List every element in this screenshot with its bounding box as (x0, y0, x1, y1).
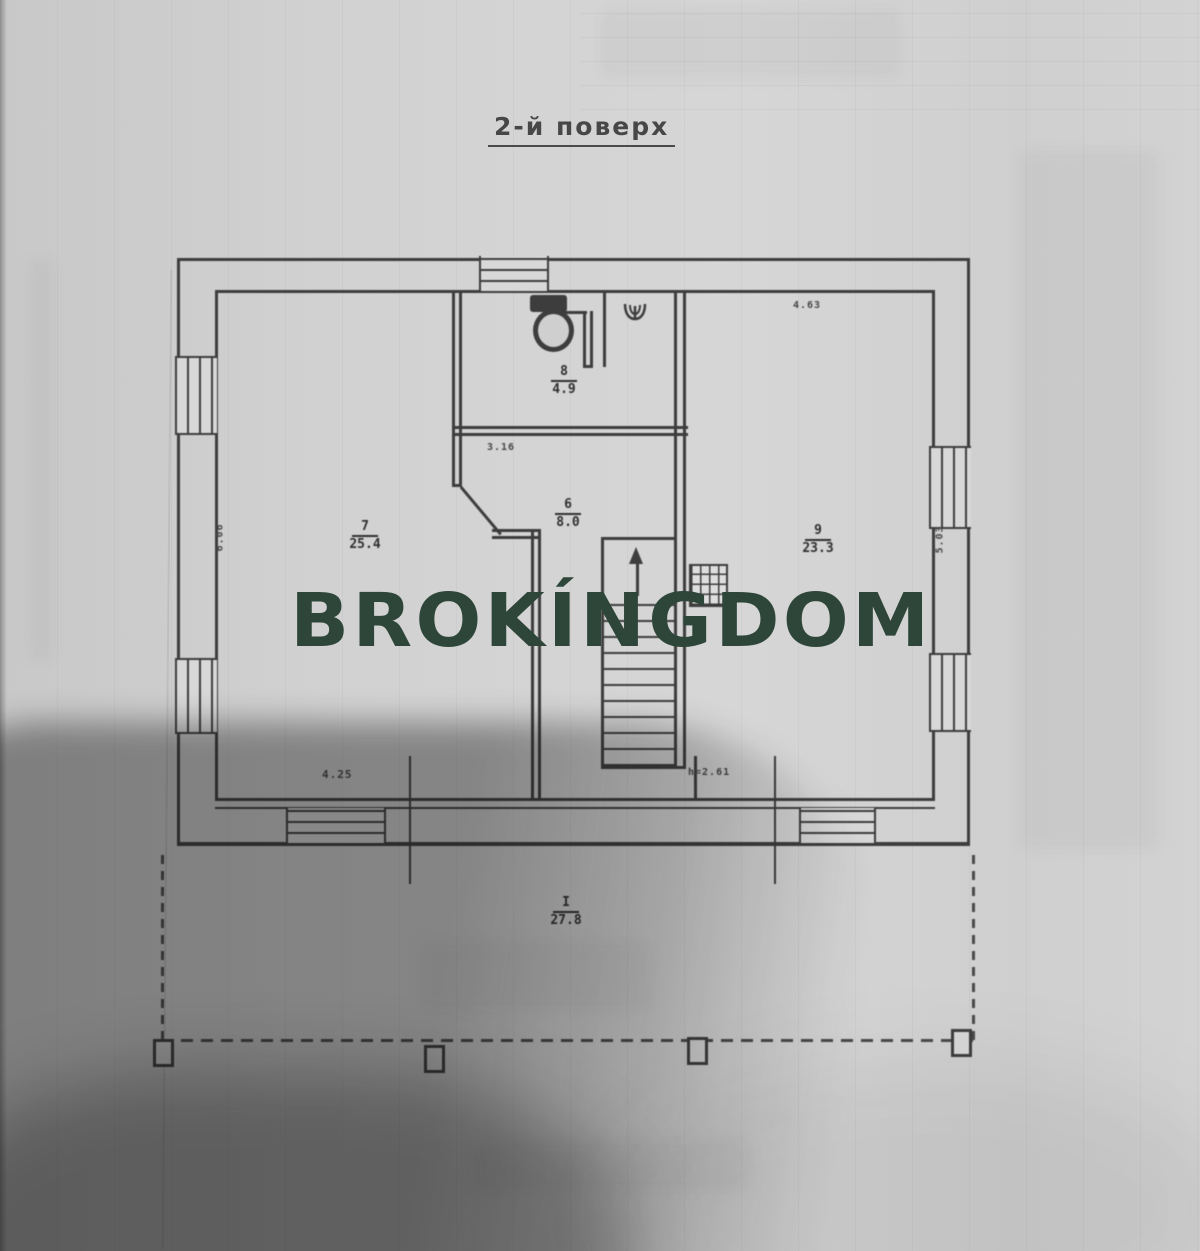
up-arrow-icon (629, 547, 643, 564)
dim-left-side: 6.06 (215, 523, 226, 551)
dim-right-side: 5.03 (935, 525, 946, 553)
stair-landing-line (601, 537, 676, 540)
wall-outer-top (177, 258, 970, 261)
wall-wc-niche-b (590, 311, 593, 368)
room-area: 25.4 (342, 538, 388, 552)
room-number: 9 (795, 524, 841, 538)
room-label-6: 6 8.0 (545, 498, 591, 531)
room-number: 7 (342, 520, 388, 534)
terrace-dashed-right (972, 848, 975, 1040)
scanned-floor-plan-page: 2-й поверх (0, 0, 1200, 1251)
sink-icon (618, 300, 652, 331)
room-area: 4.9 (541, 383, 587, 397)
room-area: 8.0 (545, 516, 591, 530)
dim-hall-width: 3.16 (487, 442, 515, 453)
watermark-logo: BROKÍNGDOM (290, 584, 932, 658)
room-label-9: 9 23.3 (795, 524, 841, 557)
toilet-icon (533, 309, 574, 352)
room-number: 6 (545, 498, 591, 512)
wall-wc-partition (603, 290, 606, 367)
wall-mid-b (683, 290, 686, 769)
wall-bath-bottom-b (452, 433, 688, 436)
wall-bath-bottom-a (452, 426, 688, 429)
window-top (479, 256, 549, 293)
room-number: 8 (541, 365, 587, 379)
room-label-8: 8 4.9 (541, 365, 587, 398)
wall-inner-top (215, 290, 935, 293)
terrace-post (951, 1029, 972, 1057)
wall-outer-right (967, 258, 970, 845)
room-label-7: 7 25.4 (342, 520, 388, 553)
door-swing-room7 (460, 486, 502, 535)
room-area: 23.3 (795, 542, 841, 556)
wall-wc-niche-a (583, 311, 586, 368)
window-left-1 (175, 356, 217, 435)
wall-room7-right-a (452, 290, 455, 486)
wall-room7-right-b (459, 290, 462, 486)
window-right-2 (929, 653, 971, 732)
dim-room9-width: 4.63 (793, 300, 821, 311)
window-right-1 (929, 446, 971, 529)
